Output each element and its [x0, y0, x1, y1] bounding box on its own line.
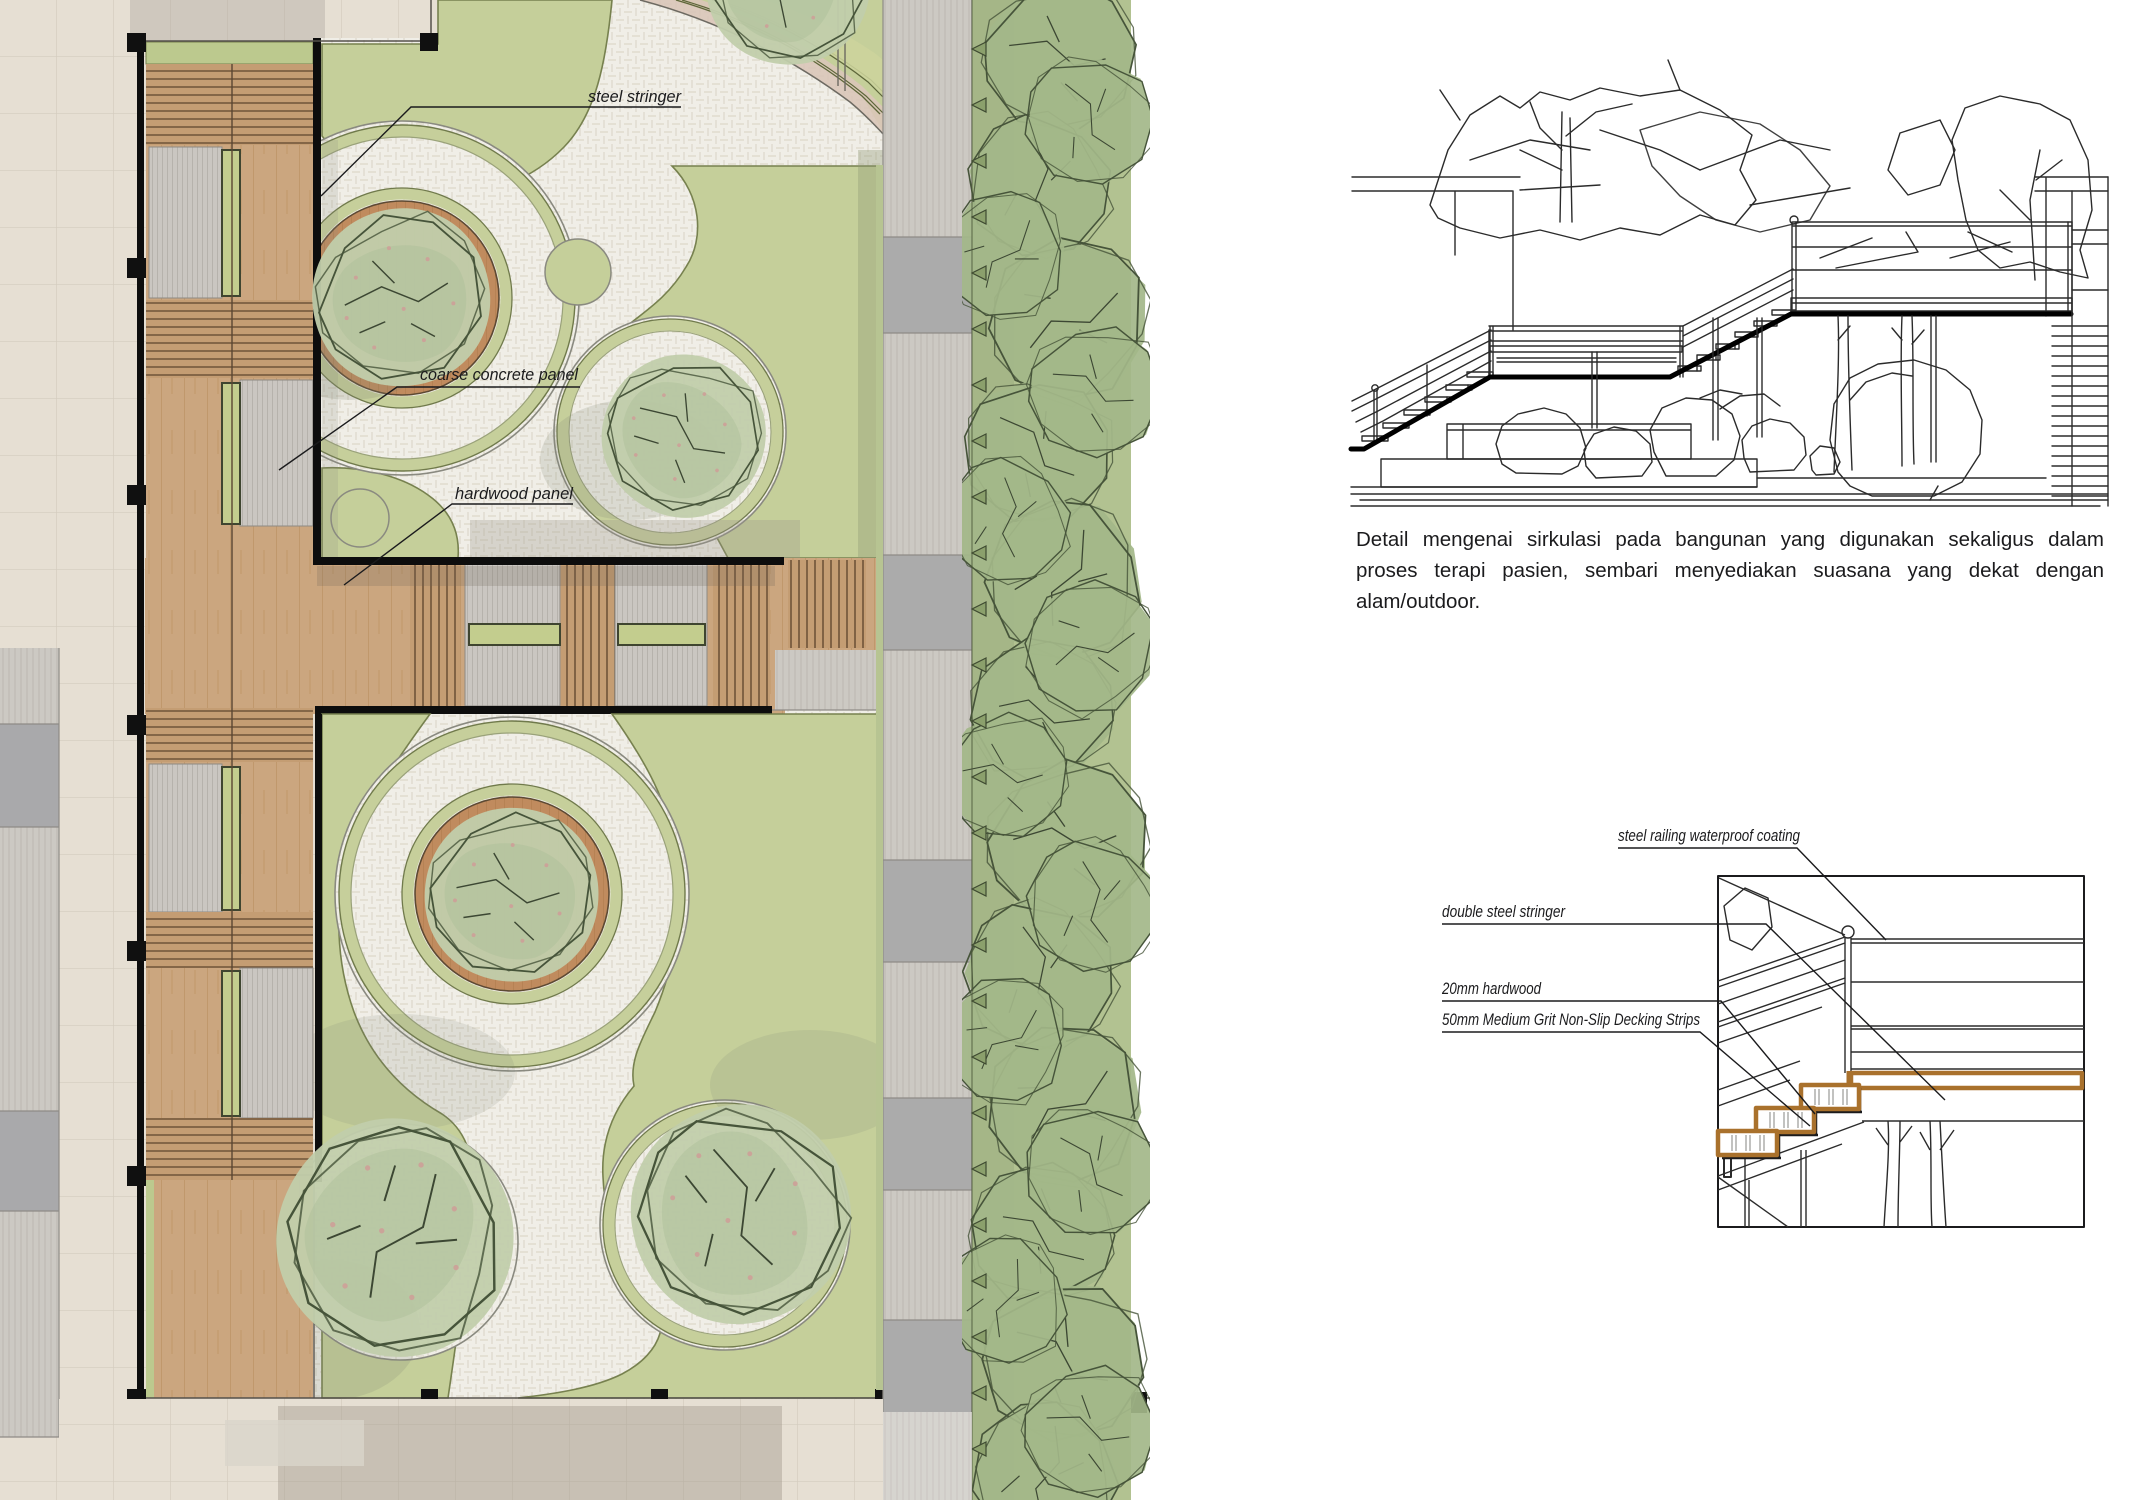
- svg-text:steel railing waterproof coati: steel railing waterproof coating: [1618, 827, 1801, 845]
- svg-text:50mm Medium Grit Non-Slip Deck: 50mm Medium Grit Non-Slip Decking Strips: [1442, 1011, 1700, 1029]
- svg-text:hardwood panel: hardwood panel: [455, 485, 574, 503]
- svg-text:steel stringer: steel stringer: [588, 88, 682, 106]
- svg-text:coarse concrete panel: coarse concrete panel: [420, 366, 579, 384]
- svg-text:20mm hardwood: 20mm hardwood: [1441, 980, 1541, 998]
- svg-text:double steel stringer: double steel stringer: [1442, 903, 1566, 921]
